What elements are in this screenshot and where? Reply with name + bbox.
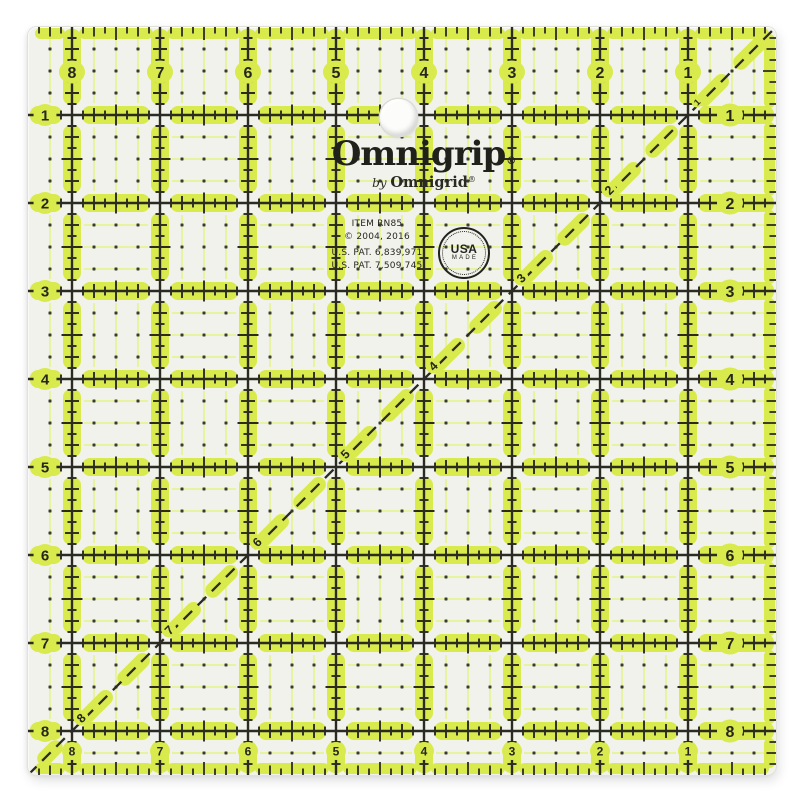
scale-number: 4 bbox=[726, 372, 735, 389]
scale-number: 1 bbox=[684, 65, 693, 82]
item-info-block: ITEM RN85 © 2004, 2016 U.S. PAT. 6,839,9… bbox=[297, 218, 457, 273]
scale-number: 1 bbox=[41, 107, 49, 124]
product-photo: { "branding": { "logo": "Omnigrip", "log… bbox=[0, 0, 800, 800]
scale-number: 4 bbox=[421, 744, 428, 758]
scale-number: 2 bbox=[726, 196, 735, 213]
scale-number: 8 bbox=[68, 65, 77, 82]
scale-number: 6 bbox=[41, 547, 49, 564]
scale-number: 3 bbox=[508, 65, 517, 82]
scale-number: 4 bbox=[41, 371, 50, 388]
hanging-hole bbox=[380, 99, 417, 136]
scale-number: 6 bbox=[726, 548, 735, 565]
scale-number: 2 bbox=[596, 65, 605, 82]
scale-number: 7 bbox=[726, 636, 735, 653]
brand-block: Omnigrip® by Omnigrid® bbox=[274, 137, 574, 191]
byline-name: Omnigrid bbox=[390, 174, 467, 191]
scale-number: 8 bbox=[726, 724, 735, 741]
badge-inner-ring: USA MADE bbox=[442, 231, 486, 275]
usa-made-badge: USA MADE bbox=[438, 227, 490, 279]
scale-number: 8 bbox=[69, 744, 76, 758]
patent-line-1: U.S. PAT. 6,839,971 bbox=[297, 247, 457, 260]
scale-number: 7 bbox=[156, 65, 165, 82]
scale-number: 6 bbox=[244, 65, 253, 82]
scale-number: 6 bbox=[245, 744, 252, 758]
scale-number: 3 bbox=[726, 284, 735, 301]
scale-number: 3 bbox=[41, 283, 49, 300]
byline-prefix: by bbox=[372, 176, 390, 190]
scale-number: 4 bbox=[420, 65, 429, 82]
brand-logo: Omnigrip® bbox=[274, 137, 574, 173]
scale-number: 5 bbox=[41, 459, 49, 476]
scale-number: 2 bbox=[597, 744, 604, 758]
scale-number: 8 bbox=[41, 723, 49, 740]
brand-byline: by Omnigrid® bbox=[274, 174, 574, 191]
scale-number: 2 bbox=[41, 195, 49, 212]
scale-number: 1 bbox=[685, 744, 692, 758]
copyright-line: © 2004, 2016 bbox=[297, 231, 457, 244]
registered-mark-icon: ® bbox=[468, 175, 476, 184]
scale-number: 7 bbox=[157, 744, 164, 758]
scale-number: 1 bbox=[726, 108, 735, 125]
item-number: ITEM RN85 bbox=[297, 218, 457, 231]
badge-made-text: MADE bbox=[452, 255, 478, 262]
patent-line-2: U.S. PAT. 7,509,745 bbox=[297, 260, 457, 273]
badge-usa-text: USA bbox=[451, 244, 478, 255]
brand-logo-text: Omnigrip bbox=[332, 134, 506, 174]
scale-number: 5 bbox=[333, 744, 340, 758]
scale-number: 7 bbox=[41, 635, 49, 652]
registered-mark-icon: ® bbox=[506, 156, 516, 167]
scale-number: 3 bbox=[509, 744, 516, 758]
quilting-ruler: 8765432187654321123456781234567812345678… bbox=[28, 27, 776, 775]
scale-number: 5 bbox=[332, 65, 341, 82]
scale-number: 5 bbox=[726, 460, 735, 477]
